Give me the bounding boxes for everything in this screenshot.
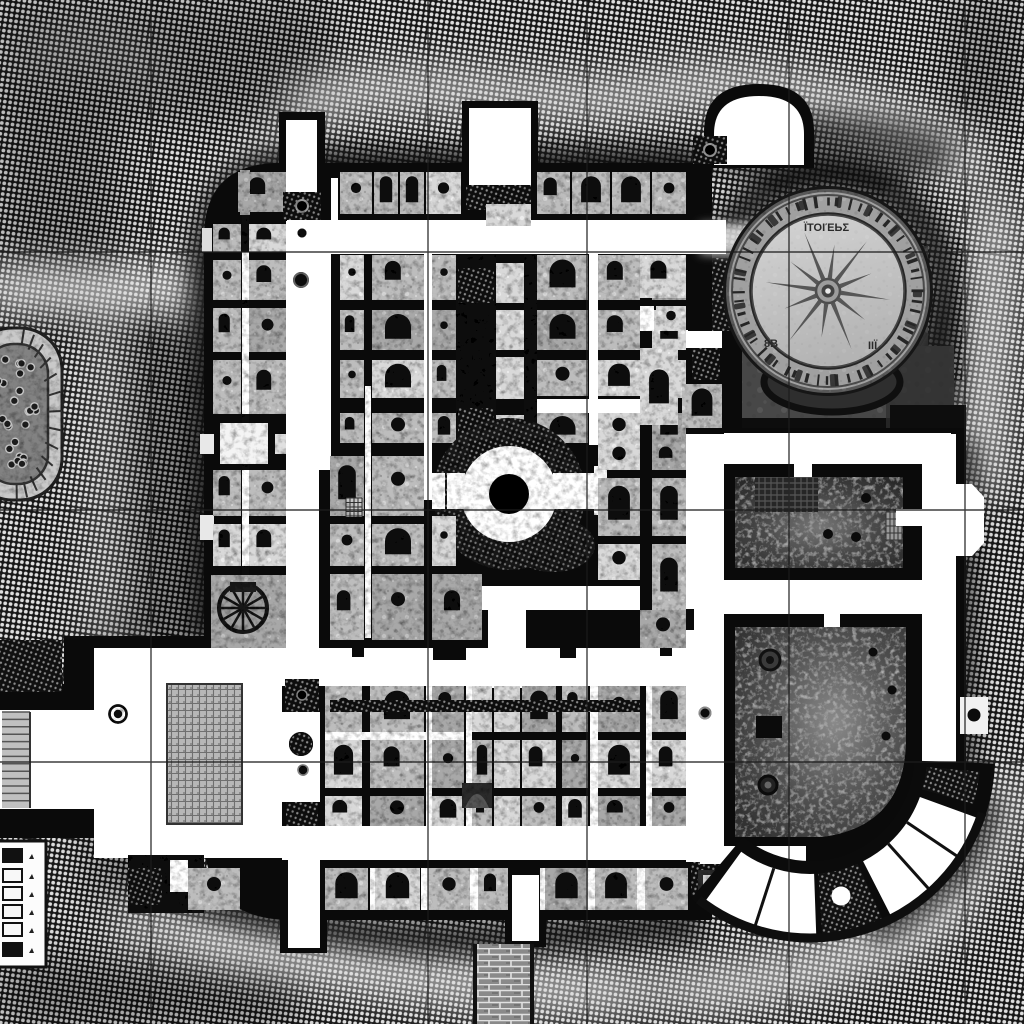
svg-text:8B: 8B [764, 338, 778, 350]
svg-text:ЇΤΟІΈЬΣ: ЇΤΟІΈЬΣ [803, 221, 849, 234]
svg-text:ІІЇ: ІІЇ [868, 339, 878, 352]
